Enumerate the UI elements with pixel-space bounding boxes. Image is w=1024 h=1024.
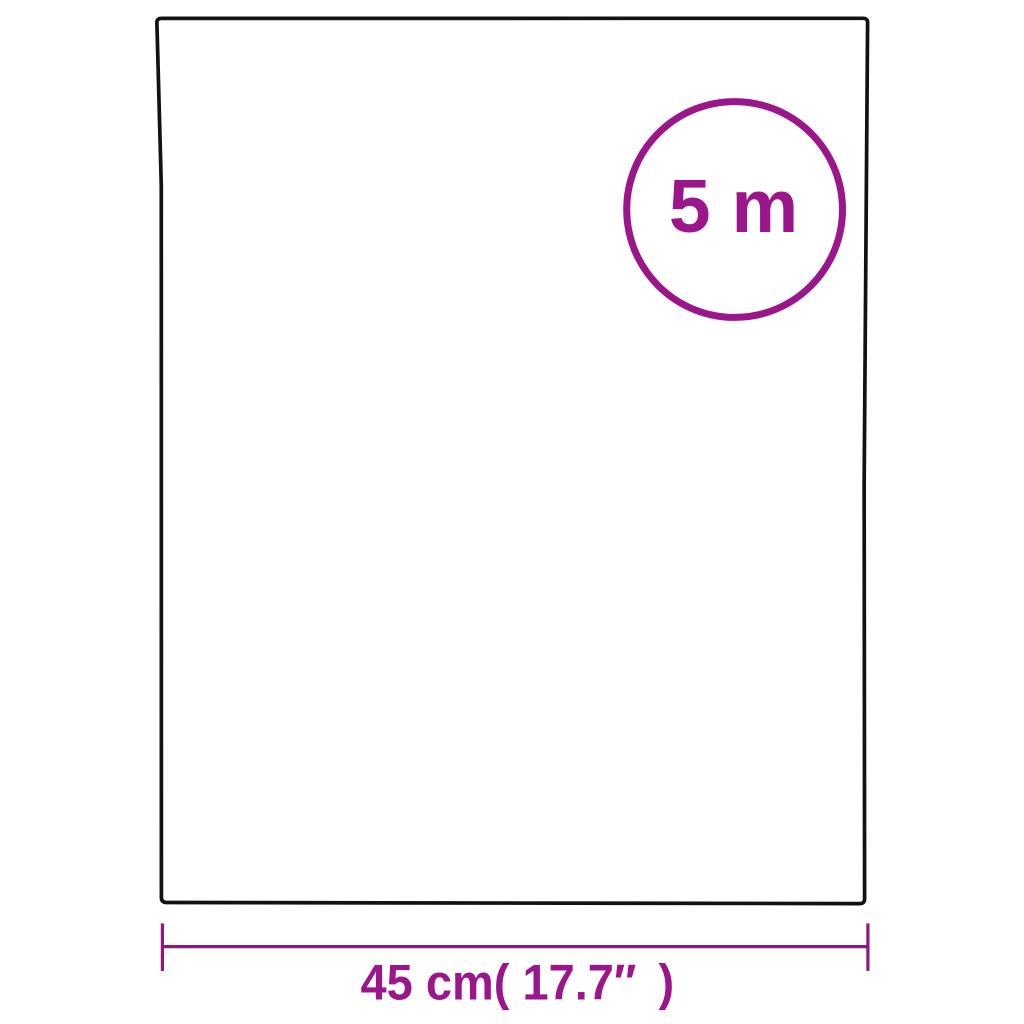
svg-text:5 m: 5 m [669, 164, 798, 248]
svg-text:45 cm( 17.7″ ): 45 cm( 17.7″ ) [361, 955, 675, 1011]
